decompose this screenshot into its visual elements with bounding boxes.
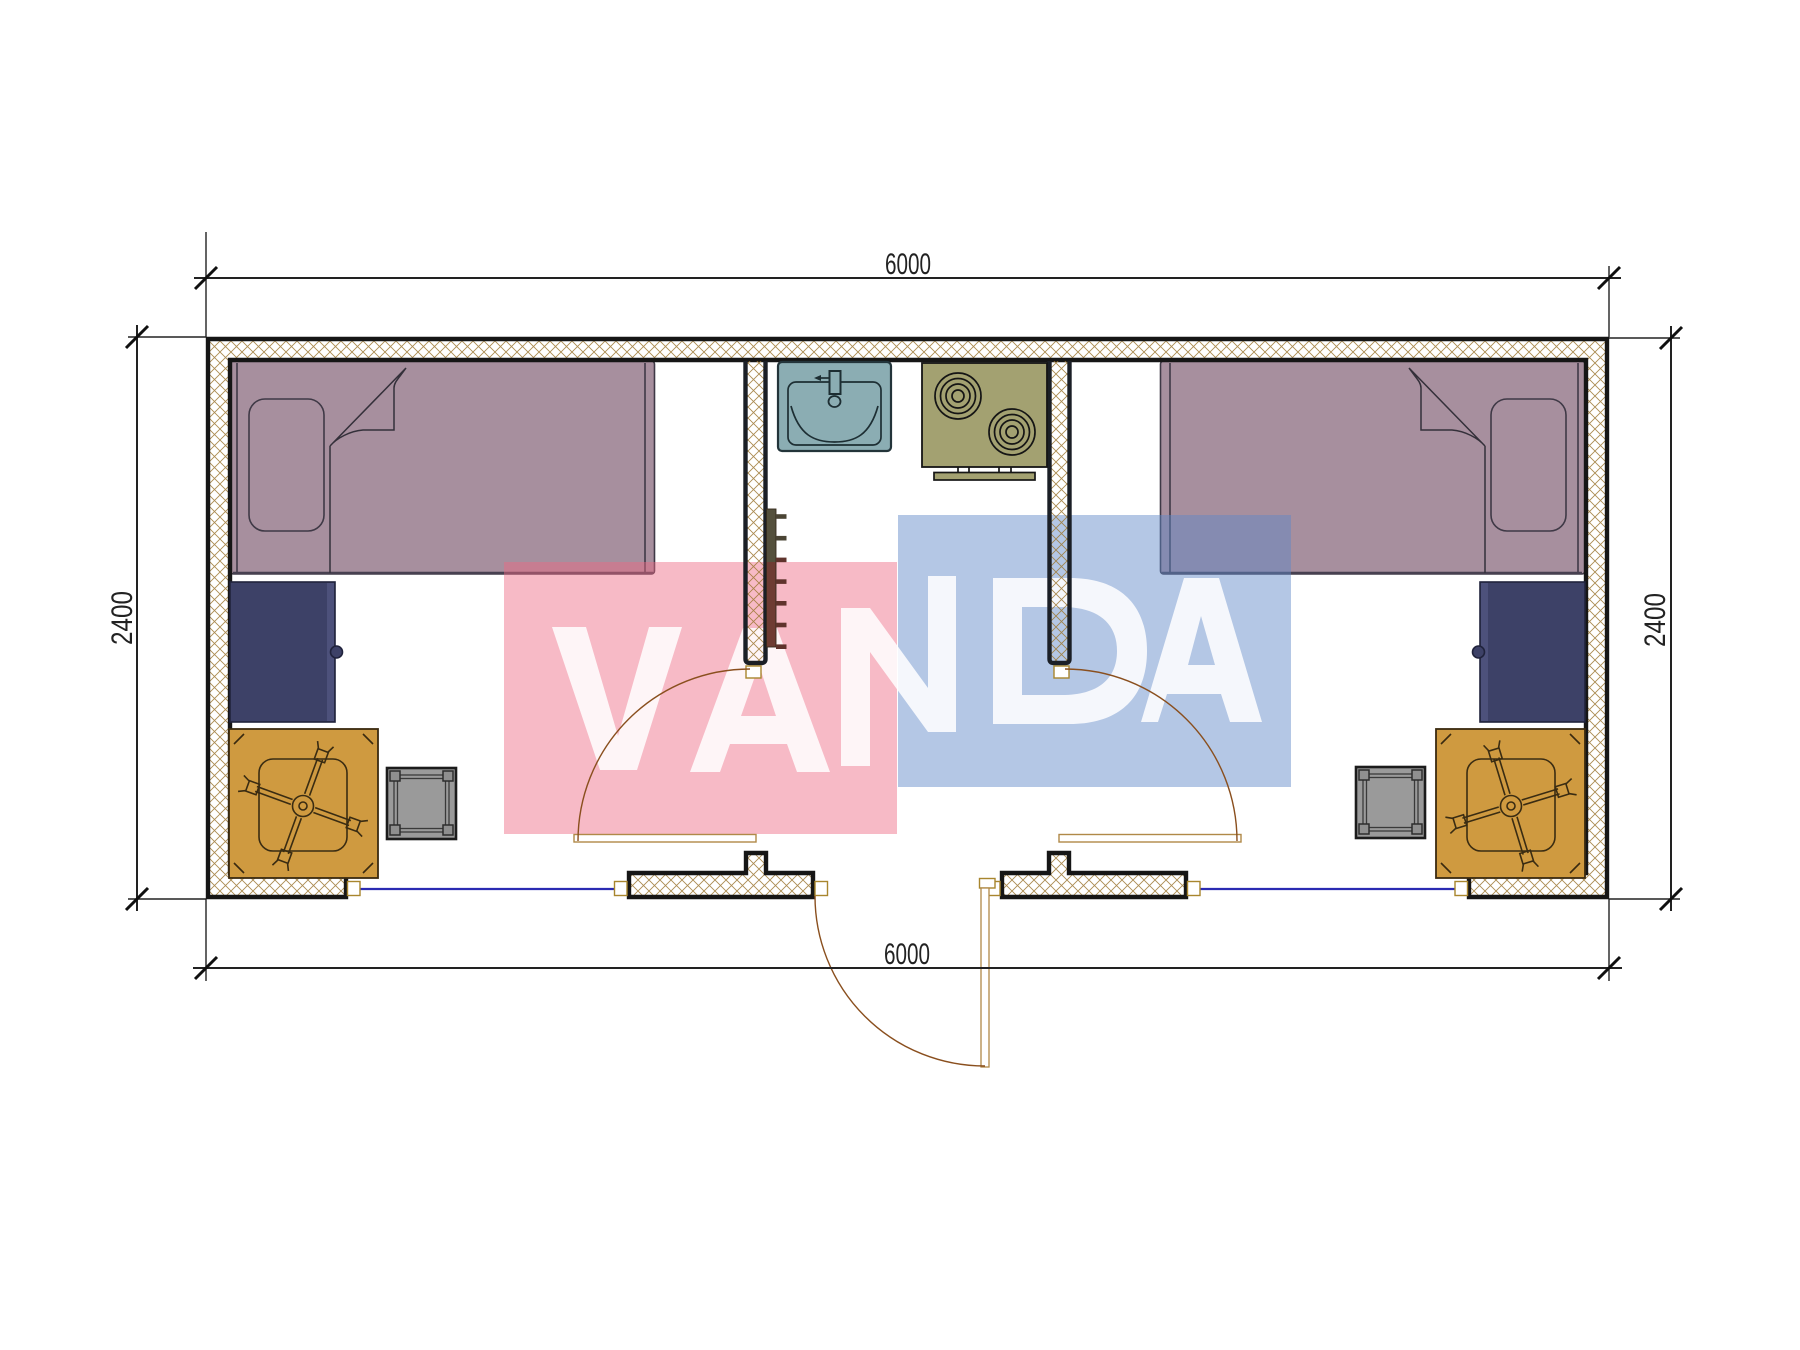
svg-text:2400: 2400: [1639, 593, 1672, 647]
svg-text:6000: 6000: [884, 938, 930, 971]
svg-text:6000: 6000: [885, 248, 931, 281]
svg-text:2400: 2400: [106, 591, 139, 645]
